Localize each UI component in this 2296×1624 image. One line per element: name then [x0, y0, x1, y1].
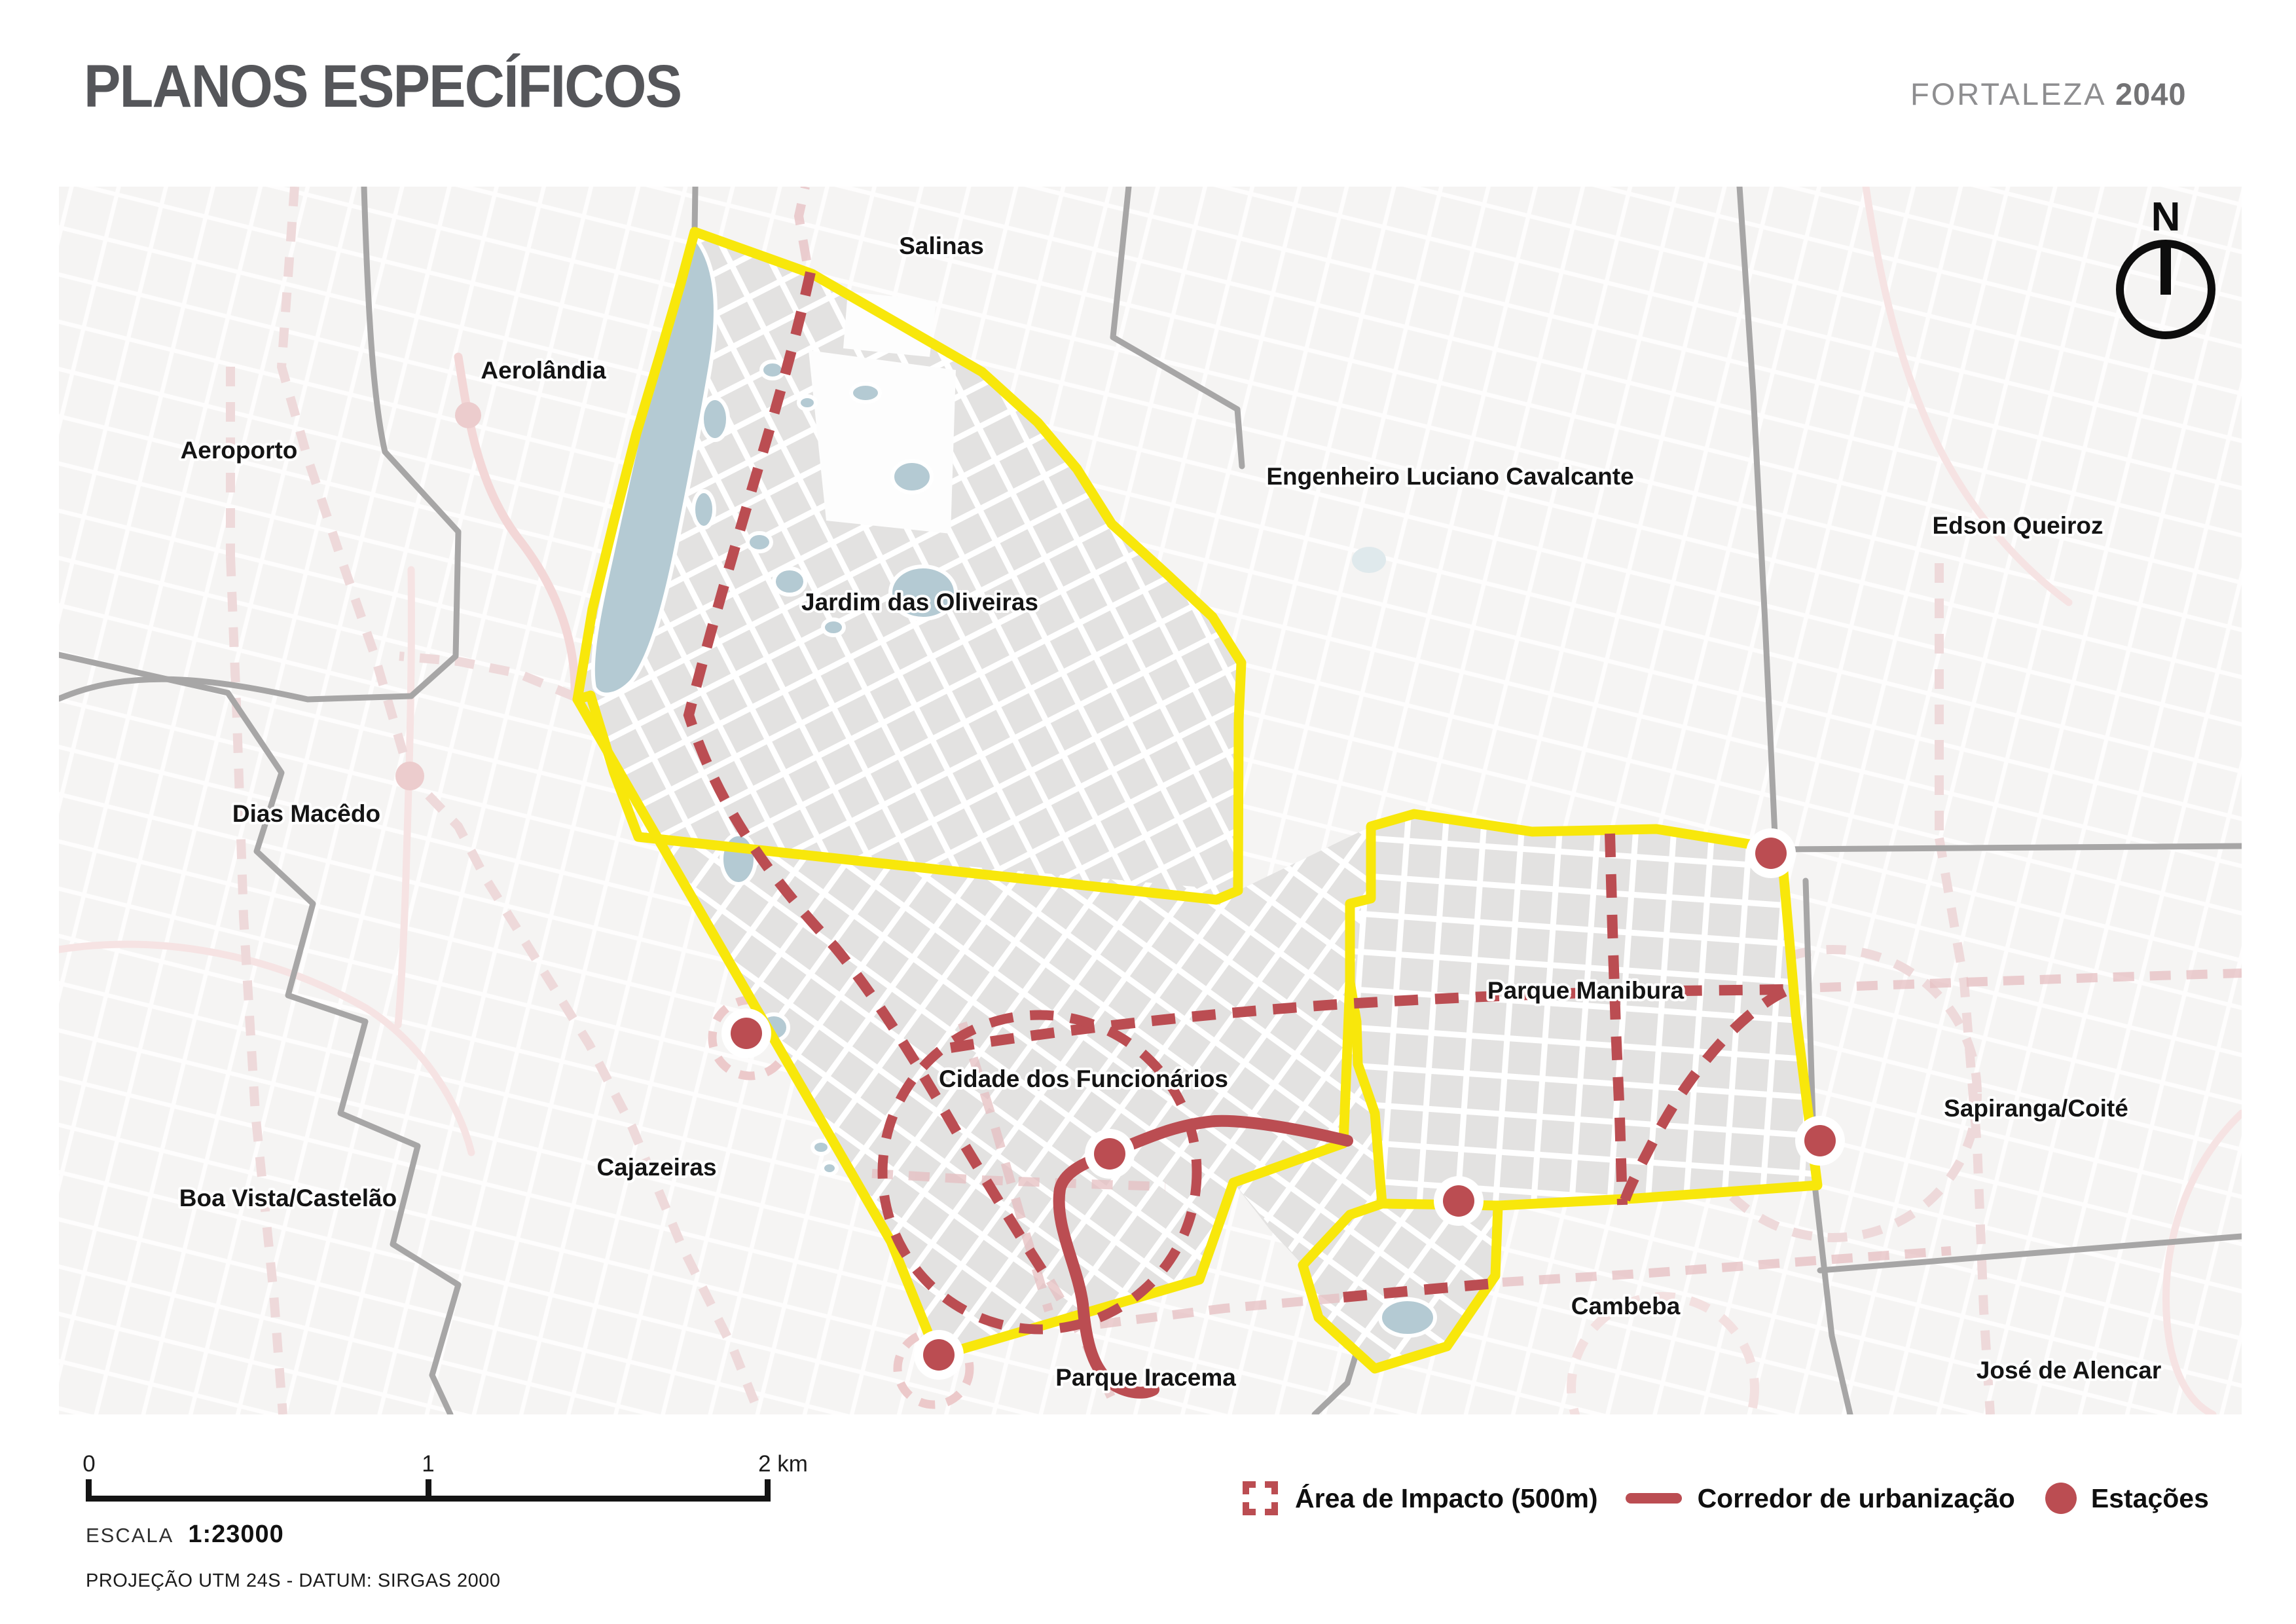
map-legend: Área de Impacto (500m) Corredor de urban… — [1243, 1467, 2209, 1530]
stations-label: Estações — [2091, 1483, 2209, 1514]
district-label: Edson Queiroz — [1932, 512, 2103, 539]
impact-area-label: Área de Impacto (500m) — [1295, 1483, 1598, 1514]
station-dot-icon — [1804, 1125, 1836, 1156]
station-dot-icon — [923, 1339, 955, 1371]
district-label: Jardim das Oliveiras — [801, 589, 1038, 616]
district-label: Salinas — [899, 232, 984, 259]
district-label: Cajazeiras — [596, 1154, 716, 1181]
corridor-swatch-icon — [1626, 1493, 1682, 1504]
district-label: Engenheiro Luciano Cavalcante — [1266, 463, 1633, 490]
faded-node-dot — [395, 762, 424, 790]
district-label: José de Alencar — [1977, 1357, 2161, 1384]
district-label: Sapiranga/Coité — [1944, 1095, 2128, 1122]
faded-node-dot — [455, 402, 481, 428]
station-swatch-icon — [2045, 1483, 2077, 1514]
district-label: Aerolândia — [481, 357, 606, 384]
scale-tick-label-0: 0 — [82, 1451, 95, 1477]
district-label: Dias Macêdo — [232, 800, 380, 827]
impact-area-swatch-icon — [1243, 1481, 1278, 1515]
station-dot-icon — [731, 1018, 762, 1049]
district-label: Parque Manibura — [1487, 977, 1685, 1004]
scale-ratio-row: ESCALA 1:23000 — [86, 1521, 284, 1549]
city-map: N SalinasAerolândiaAeroportoJardim das O… — [0, 0, 2296, 1624]
north-label: N — [2151, 194, 2181, 240]
scale-tick-label-2: 2 km — [758, 1451, 808, 1477]
scale-tick-label-1: 1 — [422, 1451, 434, 1477]
station-dot-icon — [1755, 838, 1787, 869]
map-poster-page: PLANOS ESPECÍFICOS FORTALEZA 2040 — [0, 0, 2296, 1624]
corridor-label: Corredor de urbanização — [1698, 1483, 2015, 1514]
station-dot-icon — [1443, 1185, 1474, 1217]
district-label: Aeroporto — [181, 437, 298, 464]
escala-label: ESCALA — [86, 1524, 173, 1547]
district-label: Cambeba — [1571, 1293, 1681, 1319]
projection-note: PROJEÇÃO UTM 24S - DATUM: SIRGAS 2000 — [86, 1570, 501, 1592]
district-label: Cidade dos Funcionários — [939, 1065, 1228, 1092]
industrial-white-area — [809, 350, 956, 534]
district-label: Parque Iracema — [1055, 1364, 1236, 1391]
scale-bar-tick — [765, 1479, 771, 1502]
district-label: Boa Vista/Castelão — [179, 1185, 397, 1211]
scale-ratio-value: 1:23000 — [188, 1521, 283, 1549]
scale-bar-tick — [426, 1479, 431, 1502]
station-dot-icon — [1094, 1138, 1125, 1170]
scale-bar-tick — [86, 1479, 92, 1502]
